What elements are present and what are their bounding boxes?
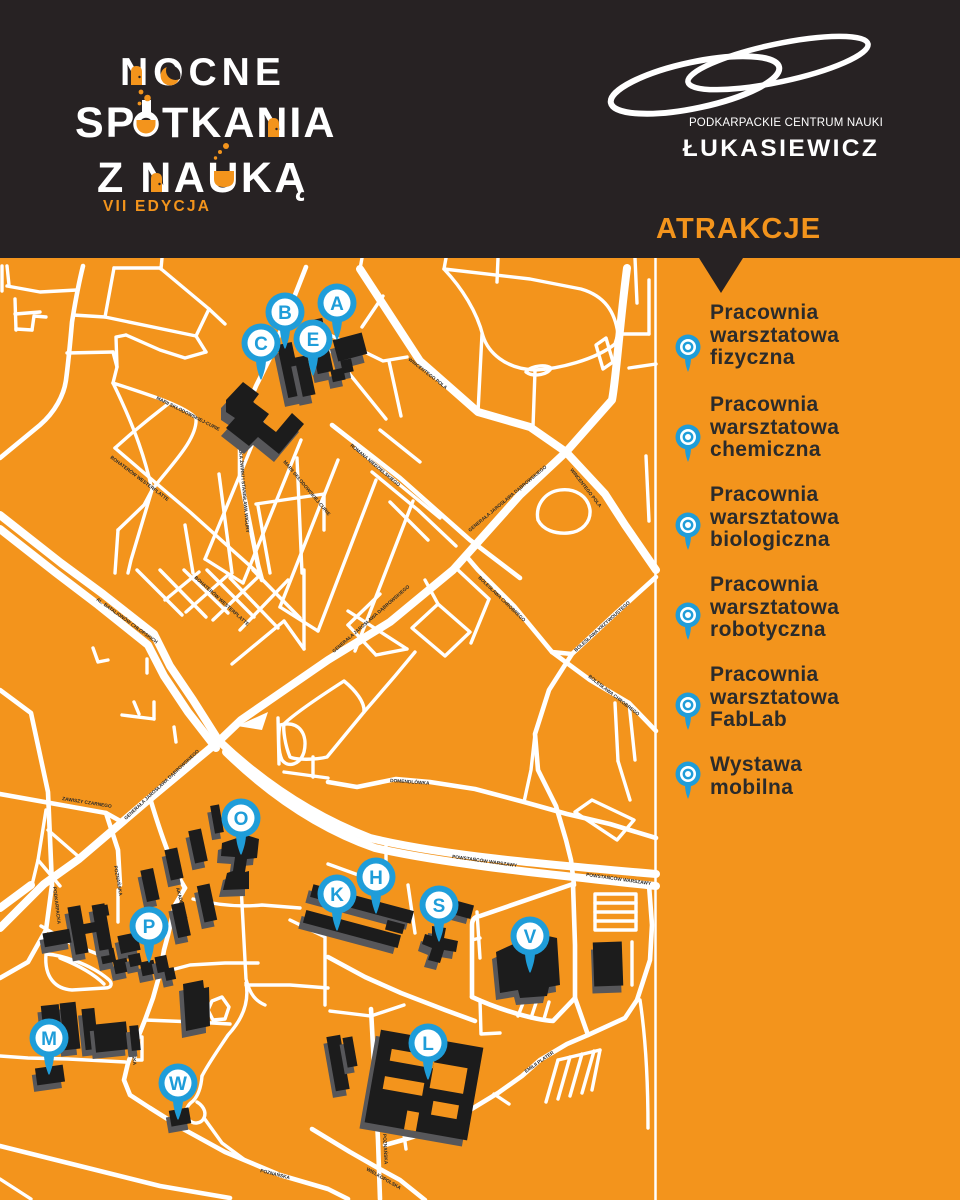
svg-text:K: K (330, 885, 344, 906)
svg-text:B: B (278, 303, 292, 324)
svg-text:PODKARPACKIE CENTRUM NAUKI: PODKARPACKIE CENTRUM NAUKI (689, 117, 883, 129)
svg-text:H: H (369, 868, 383, 889)
svg-text:W: W (169, 1074, 187, 1095)
svg-text:ATRAKCJE: ATRAKCJE (656, 213, 821, 245)
svg-text:C: C (254, 334, 268, 355)
svg-text:S: S (433, 896, 446, 917)
svg-text:E: E (307, 330, 320, 351)
svg-text:NOCNE: NOCNE (120, 51, 286, 94)
svg-text:TKANIA: TKANIA (162, 99, 336, 147)
svg-text:VII EDYCJA: VII EDYCJA (103, 198, 211, 215)
svg-text:V: V (524, 927, 537, 948)
svg-text:ŁUKASIEWICZ: ŁUKASIEWICZ (683, 135, 880, 162)
svg-text:P: P (143, 917, 156, 938)
svg-text:Z NAUKĄ: Z NAUKĄ (97, 154, 308, 202)
svg-text:M: M (41, 1029, 57, 1050)
svg-text:L: L (422, 1034, 434, 1055)
svg-text:SP: SP (75, 99, 136, 147)
svg-text:O: O (234, 809, 249, 830)
